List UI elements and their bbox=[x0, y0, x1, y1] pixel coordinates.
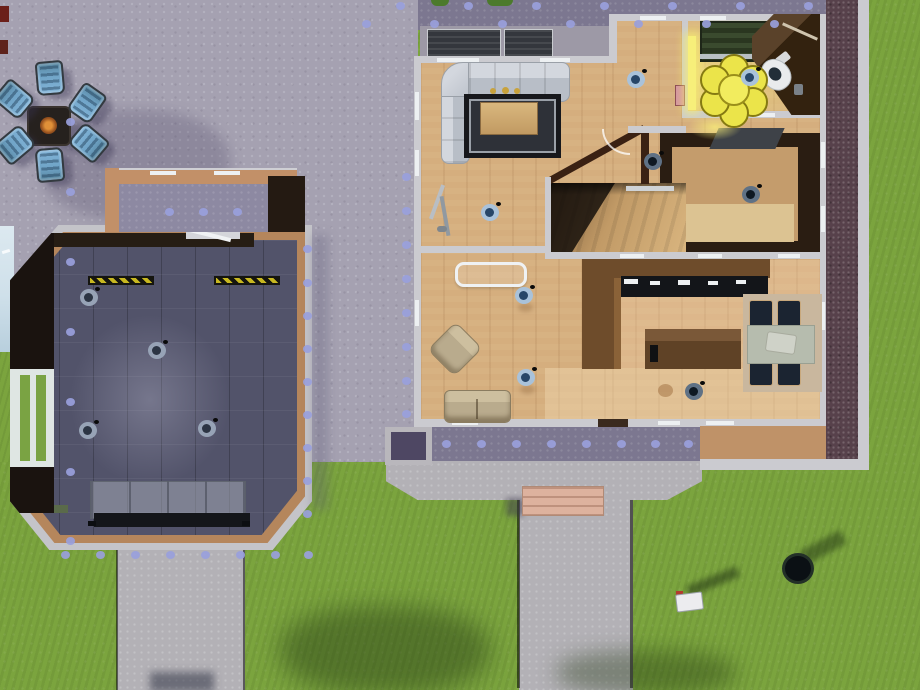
window[interactable] bbox=[415, 92, 419, 120]
patio-dot bbox=[702, 20, 711, 28]
floor-lamp-base bbox=[437, 226, 447, 232]
patio-dot bbox=[303, 279, 312, 287]
ceiling-lamp[interactable] bbox=[481, 204, 499, 221]
ceiling-lamp[interactable] bbox=[198, 420, 216, 437]
patio-dot bbox=[566, 20, 575, 28]
window-pane bbox=[36, 375, 46, 461]
patio-dot bbox=[396, 2, 405, 10]
appliance-glint bbox=[678, 280, 690, 285]
patio-dot bbox=[199, 208, 208, 216]
coffee-table[interactable] bbox=[480, 102, 538, 135]
counter-inner-edge bbox=[614, 278, 621, 369]
window[interactable] bbox=[698, 254, 722, 258]
patio-chair[interactable] bbox=[35, 147, 66, 183]
patio-dot bbox=[668, 2, 677, 10]
den-rug[interactable] bbox=[678, 204, 794, 242]
south-exterior-trim bbox=[700, 459, 869, 470]
courtyard-west-wall bbox=[105, 168, 119, 232]
patio-dot bbox=[430, 20, 439, 28]
loveseat[interactable] bbox=[444, 390, 511, 423]
ceiling-lamp[interactable] bbox=[685, 383, 703, 400]
window[interactable] bbox=[415, 300, 419, 326]
patio-dot bbox=[477, 440, 486, 448]
patio-dot bbox=[684, 440, 693, 448]
patio-dot bbox=[362, 20, 371, 28]
ceiling-lamp[interactable] bbox=[644, 153, 662, 170]
patio-dot bbox=[66, 118, 75, 126]
front-steps[interactable] bbox=[522, 486, 604, 516]
window[interactable] bbox=[821, 142, 825, 168]
window[interactable] bbox=[778, 254, 800, 258]
flower-rug[interactable] bbox=[700, 56, 764, 120]
front-path-edge-left bbox=[517, 500, 520, 688]
patio-dot bbox=[600, 2, 609, 10]
game-viewport bbox=[0, 0, 920, 690]
patio-dot bbox=[498, 20, 507, 28]
ceiling-lamp[interactable] bbox=[517, 369, 535, 386]
west-path-edge-right bbox=[243, 545, 245, 690]
bench-foot bbox=[242, 521, 250, 526]
patio-dot bbox=[736, 2, 745, 10]
patio-dot bbox=[131, 551, 140, 559]
front-door[interactable] bbox=[598, 419, 628, 427]
patio-dot bbox=[402, 241, 411, 249]
patio-dot bbox=[66, 468, 75, 476]
courtyard-floor bbox=[119, 182, 268, 232]
gym-bench-bar[interactable] bbox=[94, 513, 250, 527]
east-exterior-trim bbox=[858, 0, 869, 466]
mailbox[interactable] bbox=[675, 591, 704, 612]
patio-dot bbox=[402, 173, 411, 181]
candle-decor[interactable] bbox=[514, 88, 520, 94]
ceiling-lamp[interactable] bbox=[515, 287, 533, 304]
lamp-floor-shadow bbox=[518, 303, 533, 312]
window-pane bbox=[20, 375, 30, 461]
edge-shrub-1 bbox=[0, 6, 9, 22]
table-centerpiece[interactable] bbox=[765, 331, 797, 355]
south-exterior-wood bbox=[700, 426, 826, 459]
patio-dot bbox=[582, 440, 591, 448]
patio-dot bbox=[66, 537, 75, 545]
hazard-strip[interactable] bbox=[214, 276, 280, 285]
ceiling-lamp[interactable] bbox=[741, 69, 759, 86]
patio-dot bbox=[236, 551, 245, 559]
patio-dot bbox=[96, 551, 105, 559]
gym-floor-light bbox=[70, 315, 230, 485]
patio-dot bbox=[402, 275, 411, 283]
kitchen-island[interactable] bbox=[645, 329, 741, 369]
appliance-glint bbox=[624, 279, 638, 284]
north-patio-strip-right bbox=[612, 0, 826, 15]
ceiling-lamp[interactable] bbox=[79, 422, 97, 439]
bathroom-glow-wall bbox=[688, 36, 696, 110]
east-exterior-wall bbox=[826, 0, 858, 466]
glass-table[interactable] bbox=[455, 262, 527, 287]
edge-shrub-2 bbox=[0, 40, 8, 54]
patio-dot bbox=[303, 510, 312, 518]
ceiling-lamp[interactable] bbox=[80, 289, 98, 306]
patio-dot bbox=[303, 312, 312, 320]
wall-corridor bbox=[628, 126, 686, 133]
window[interactable] bbox=[821, 206, 825, 232]
hazard-strip[interactable] bbox=[88, 276, 154, 285]
patio-dot bbox=[512, 440, 521, 448]
west-path bbox=[117, 537, 245, 690]
tree-shadow bbox=[556, 650, 736, 690]
patio-dot bbox=[402, 309, 411, 317]
appliance-glint bbox=[736, 280, 746, 284]
planter-box-soil bbox=[391, 432, 426, 460]
patio-dot bbox=[402, 343, 411, 351]
porch-deck-panel bbox=[427, 29, 501, 57]
gym-small-item[interactable] bbox=[54, 505, 68, 513]
courtyard-shed-block bbox=[268, 176, 305, 232]
patio-dot bbox=[634, 20, 643, 28]
patio-dot bbox=[547, 440, 556, 448]
candle-decor[interactable] bbox=[502, 87, 509, 94]
patio-chair[interactable] bbox=[35, 60, 66, 96]
patio-dot bbox=[66, 398, 75, 406]
patio-dot bbox=[303, 245, 312, 253]
trash-can[interactable] bbox=[782, 553, 814, 584]
patio-dot bbox=[303, 411, 312, 419]
tree-canopy-edge bbox=[487, 0, 513, 6]
porch-deck-panel bbox=[504, 29, 553, 57]
appliance-glint bbox=[650, 281, 660, 285]
patio-dot bbox=[532, 2, 541, 10]
patio-dot bbox=[464, 2, 473, 10]
wall-art[interactable] bbox=[675, 85, 685, 106]
island-top-band bbox=[645, 329, 741, 341]
tree-shadow bbox=[280, 606, 490, 690]
patio-dot bbox=[303, 345, 312, 353]
patio-dot bbox=[804, 2, 813, 10]
patio-dot bbox=[303, 477, 312, 485]
appliance-glint bbox=[708, 281, 718, 285]
gym-west-window[interactable] bbox=[10, 369, 54, 467]
ceiling-lamp[interactable] bbox=[627, 71, 645, 88]
stair-handrail bbox=[626, 186, 674, 191]
patio-dot bbox=[303, 378, 312, 386]
window[interactable] bbox=[620, 254, 644, 258]
gym-east-shadow bbox=[312, 235, 328, 510]
ceiling-lamp[interactable] bbox=[148, 342, 166, 359]
patio-dot bbox=[61, 551, 70, 559]
fire-glow bbox=[40, 117, 57, 134]
patio-dot bbox=[165, 208, 174, 216]
seat-split bbox=[476, 399, 478, 419]
patio-dot bbox=[402, 410, 411, 418]
patio-dot bbox=[770, 20, 779, 28]
bathroom-wastebasket[interactable] bbox=[794, 84, 803, 95]
gym-building bbox=[10, 225, 312, 550]
patio-dot bbox=[233, 208, 242, 216]
patio-dot bbox=[651, 440, 660, 448]
patio-dot bbox=[303, 444, 312, 452]
ceiling-lamp[interactable] bbox=[742, 186, 760, 203]
wall-living-divider bbox=[420, 246, 547, 253]
courtyard-window bbox=[150, 171, 176, 175]
window[interactable] bbox=[706, 421, 734, 425]
patio-dot bbox=[402, 207, 411, 215]
patio-dot bbox=[402, 377, 411, 385]
patio-dot bbox=[271, 551, 280, 559]
patio-dot bbox=[442, 440, 451, 448]
wall-north-jog bbox=[609, 14, 617, 63]
candle-decor[interactable] bbox=[490, 88, 496, 94]
gym-west-wall-lower bbox=[10, 467, 54, 513]
patio-dot bbox=[201, 551, 210, 559]
courtyard-window bbox=[214, 171, 240, 175]
window[interactable] bbox=[658, 421, 680, 425]
wall-stair-west bbox=[545, 177, 551, 259]
window[interactable] bbox=[415, 150, 419, 176]
path-shadow bbox=[150, 672, 214, 690]
patio-dot bbox=[166, 551, 175, 559]
patio-dot bbox=[304, 551, 313, 559]
den-wall-east bbox=[798, 147, 820, 251]
patio-dot bbox=[617, 440, 626, 448]
patio-dot bbox=[66, 258, 75, 266]
round-rug-small[interactable] bbox=[658, 384, 673, 397]
island-appliance bbox=[650, 345, 658, 362]
west-path-edge-left bbox=[116, 545, 118, 690]
patio-dot bbox=[66, 188, 75, 196]
patio-dot bbox=[66, 328, 75, 336]
lamp-floor-shadow bbox=[520, 385, 535, 394]
bench-foot bbox=[88, 521, 96, 526]
window[interactable] bbox=[640, 16, 666, 20]
